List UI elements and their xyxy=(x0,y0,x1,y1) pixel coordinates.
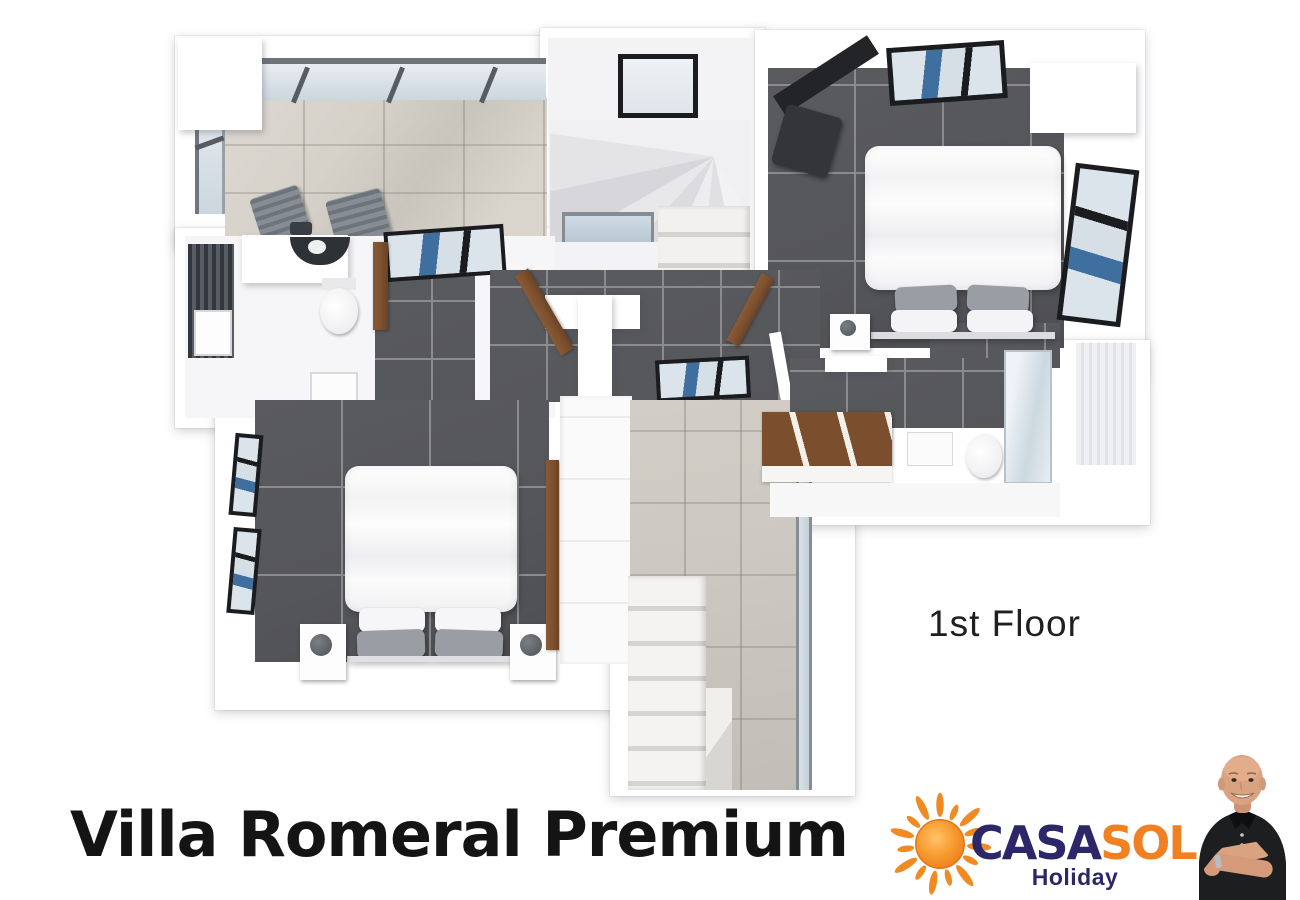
duvet xyxy=(865,146,1061,290)
toilet xyxy=(320,288,358,334)
railing-post xyxy=(479,66,498,103)
duvet xyxy=(345,466,517,612)
bathroom-left-dark-floor xyxy=(375,268,475,416)
double-bed xyxy=(865,146,1061,338)
stairs-down xyxy=(628,576,706,790)
wardrobe-side-panel xyxy=(373,242,388,330)
table-lamp xyxy=(310,634,332,656)
bathroom-right-beam xyxy=(825,356,887,372)
railing-post xyxy=(291,66,310,103)
wardrobe-post xyxy=(546,460,559,650)
railing-post xyxy=(386,66,405,103)
double-bed xyxy=(345,466,517,662)
railing-post xyxy=(195,136,225,151)
landing-wall xyxy=(578,295,612,401)
side-table xyxy=(290,222,312,235)
toilet xyxy=(966,434,1002,478)
casasol-logo: CASASOL Holiday xyxy=(884,788,1184,900)
bathroom-door xyxy=(907,432,953,466)
sink xyxy=(308,240,326,254)
closet-shelves xyxy=(762,412,892,466)
textured-wall xyxy=(1076,343,1136,465)
wardrobe-white xyxy=(560,396,632,664)
bedroom-right-window-top xyxy=(886,40,1008,106)
brand-casa: CASA xyxy=(970,816,1100,870)
closet-front xyxy=(762,466,892,482)
brand-sol: SOL xyxy=(1100,816,1196,870)
stair-balustrade xyxy=(562,212,654,242)
table-lamp xyxy=(840,320,856,336)
terrace-roof-block xyxy=(178,38,262,130)
pillow-gray xyxy=(357,629,426,659)
brand-wordmark: CASASOL xyxy=(970,816,1196,870)
pillow-white xyxy=(967,310,1033,332)
brand-subtitle: Holiday xyxy=(970,864,1180,891)
agent-illustration xyxy=(1185,745,1300,900)
stairs-turn xyxy=(706,688,732,790)
landing-window xyxy=(655,356,751,403)
pillow-white xyxy=(891,310,957,332)
wardrobe-sliding-doors xyxy=(383,224,506,282)
bed-frame xyxy=(871,332,1055,339)
page: 1st Floor Villa Romeral Premium xyxy=(0,0,1300,900)
bed-frame xyxy=(347,656,515,662)
bedroom-right-corner-block xyxy=(1030,63,1136,133)
page-title: Villa Romeral Premium xyxy=(70,798,848,871)
staircase-window xyxy=(618,54,698,118)
pillow-gray xyxy=(435,629,504,659)
agent-photo xyxy=(1185,745,1300,900)
bathroom-right-floor xyxy=(770,483,1060,517)
shower-glass-panel xyxy=(1004,350,1052,484)
floor-plan xyxy=(170,28,1145,793)
shower-tray xyxy=(194,310,232,356)
terrace-railing xyxy=(228,58,546,100)
floor-label: 1st Floor xyxy=(928,603,1081,645)
table-lamp xyxy=(520,634,542,656)
